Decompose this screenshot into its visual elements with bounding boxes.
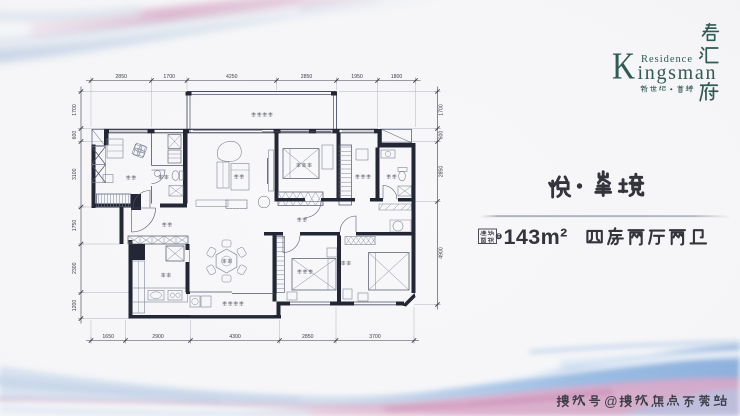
svg-text:1650: 1650 bbox=[102, 334, 114, 340]
svg-text:2850: 2850 bbox=[115, 74, 127, 80]
svg-text:600: 600 bbox=[72, 131, 78, 140]
svg-text:3700: 3700 bbox=[369, 334, 381, 340]
svg-text:2850: 2850 bbox=[439, 166, 445, 178]
svg-text:2850: 2850 bbox=[301, 74, 313, 80]
svg-text:1700: 1700 bbox=[72, 104, 78, 116]
svg-text:1950: 1950 bbox=[351, 74, 363, 80]
svg-text:2300: 2300 bbox=[72, 262, 78, 274]
svg-text:600: 600 bbox=[439, 131, 445, 140]
svg-text:@: @ bbox=[604, 394, 618, 409]
svg-text:1750: 1750 bbox=[72, 220, 78, 232]
svg-text:1700: 1700 bbox=[163, 74, 175, 80]
svg-text:1800: 1800 bbox=[391, 74, 403, 80]
svg-text:2850: 2850 bbox=[302, 334, 314, 340]
svg-text:4300: 4300 bbox=[229, 334, 241, 340]
svg-text:1700: 1700 bbox=[439, 104, 445, 116]
svg-text:3100: 3100 bbox=[72, 168, 78, 180]
svg-text:4250: 4250 bbox=[226, 74, 238, 80]
svg-text:K: K bbox=[612, 46, 635, 88]
svg-text:2900: 2900 bbox=[152, 334, 164, 340]
svg-text:1200: 1200 bbox=[72, 300, 78, 312]
svg-text:4900: 4900 bbox=[439, 247, 445, 259]
svg-text:143m²: 143m² bbox=[504, 225, 568, 249]
